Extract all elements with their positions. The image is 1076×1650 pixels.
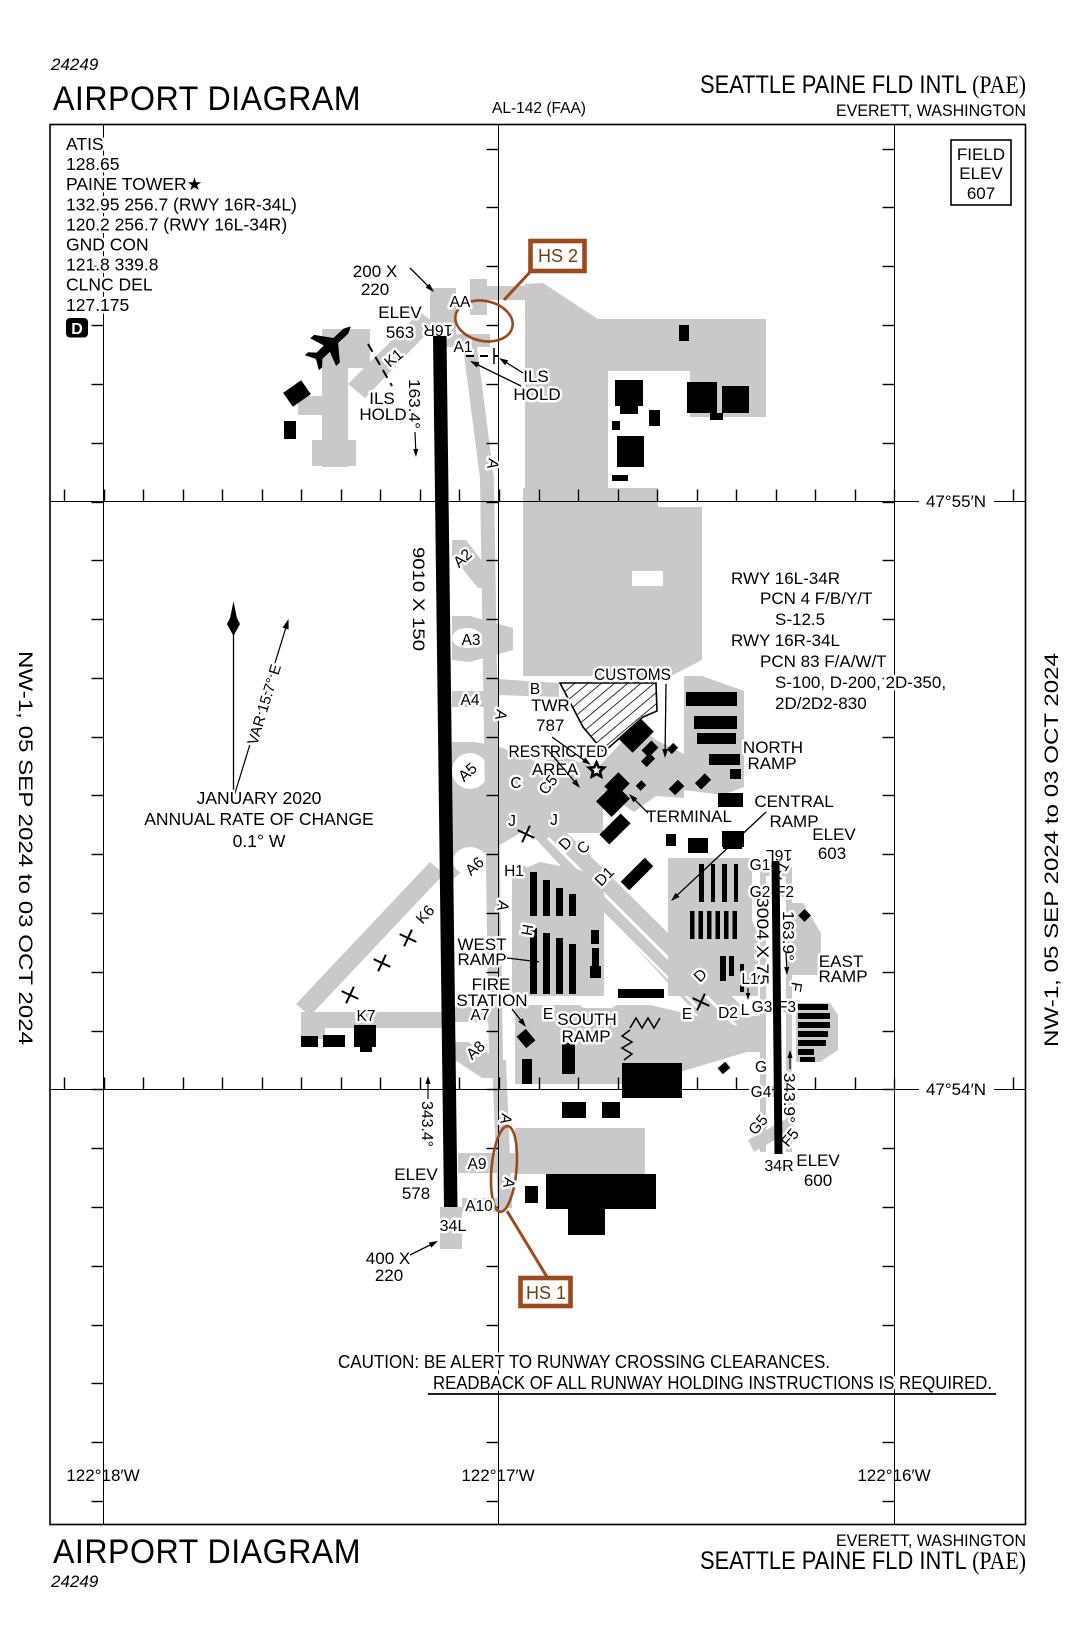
svg-text:G1: G1 xyxy=(750,857,771,874)
svg-text:C: C xyxy=(510,775,521,792)
svg-text:ATIS: ATIS xyxy=(66,134,104,154)
svg-text:24249: 24249 xyxy=(50,1572,99,1591)
svg-text:G2: G2 xyxy=(750,884,771,901)
svg-text:PCN 83 F/A/W/T: PCN 83 F/A/W/T xyxy=(760,652,887,671)
svg-text:603: 603 xyxy=(818,844,846,863)
svg-text:120.2 256.7 (RWY 16L-34R): 120.2 256.7 (RWY 16L-34R) xyxy=(66,214,287,234)
svg-text:J: J xyxy=(508,813,516,830)
svg-text:RAMP: RAMP xyxy=(769,812,818,831)
svg-text:787: 787 xyxy=(536,716,564,735)
svg-text:D2: D2 xyxy=(718,1005,738,1022)
svg-text:563: 563 xyxy=(386,323,414,342)
svg-text:AL-142 (FAA): AL-142 (FAA) xyxy=(492,100,586,117)
svg-text:A1: A1 xyxy=(454,339,473,356)
svg-text:34L: 34L xyxy=(440,1218,467,1235)
svg-text:ELEV: ELEV xyxy=(378,303,422,322)
svg-text:TWR: TWR xyxy=(531,696,570,715)
svg-text:200 X: 200 X xyxy=(353,262,397,281)
svg-text:163.9°: 163.9° xyxy=(779,911,796,961)
svg-text:G: G xyxy=(755,1059,767,1076)
svg-text:TERMINAL: TERMINAL xyxy=(646,807,732,826)
svg-text:B: B xyxy=(530,681,540,698)
svg-text:L: L xyxy=(741,1002,750,1019)
svg-text:L1: L1 xyxy=(741,971,758,988)
svg-text:PCN 4 F/B/Y/T: PCN 4 F/B/Y/T xyxy=(760,589,872,608)
svg-text:RWY 16L-34R: RWY 16L-34R xyxy=(731,569,840,588)
svg-text:ELEV: ELEV xyxy=(394,1165,438,1184)
svg-text:600: 600 xyxy=(804,1171,832,1190)
svg-text:CUSTOMS: CUSTOMS xyxy=(594,665,671,684)
svg-text:NW-1, 05 SEP 2024 to 03 OCT: NW-1, 05 SEP 2024 to 03 OCT 2024 xyxy=(14,651,35,1046)
svg-text:AIRPORT DIAGRAM: AIRPORT DIAGRAM xyxy=(53,1533,361,1571)
svg-text:AIRPORT DIAGRAM: AIRPORT DIAGRAM xyxy=(53,80,361,118)
svg-text:24249: 24249 xyxy=(50,55,99,74)
svg-text:A4: A4 xyxy=(461,692,480,709)
svg-text:127.175: 127.175 xyxy=(66,295,129,315)
svg-text:CLNC DEL: CLNC DEL xyxy=(66,275,153,295)
svg-text:RAMP: RAMP xyxy=(818,967,867,986)
svg-text:HS 2: HS 2 xyxy=(538,246,578,266)
svg-text:ELEV: ELEV xyxy=(796,1151,840,1170)
svg-text:RESTRICTED: RESTRICTED xyxy=(509,742,608,761)
svg-text:RAMP: RAMP xyxy=(561,1027,610,1046)
svg-text:A7: A7 xyxy=(471,1007,490,1024)
svg-text:CENTRAL: CENTRAL xyxy=(754,792,833,811)
svg-text:ELEV: ELEV xyxy=(812,825,856,844)
svg-text:163.4°: 163.4° xyxy=(405,379,422,429)
svg-text:0.1° W: 0.1° W xyxy=(233,831,286,851)
svg-text:SEATTLE PAINE FLD INTL (PAE): SEATTLE PAINE FLD INTL (PAE) xyxy=(700,1547,1026,1575)
svg-text:GND CON: GND CON xyxy=(66,235,149,255)
svg-text:ANNUAL RATE OF CHANGE: ANNUAL RATE OF CHANGE xyxy=(144,809,373,829)
svg-text:9010 X 150: 9010 X 150 xyxy=(409,547,428,651)
svg-text:SEATTLE PAINE FLD INTL (PAE): SEATTLE PAINE FLD INTL (PAE) xyxy=(700,71,1026,99)
svg-text:HS 1: HS 1 xyxy=(526,1283,566,1303)
svg-text:34R: 34R xyxy=(764,1158,793,1175)
svg-text:S-100, D-200, 2D-350,: S-100, D-200, 2D-350, xyxy=(775,673,946,692)
svg-text:47°55′N: 47°55′N xyxy=(926,492,986,511)
svg-text:128.65: 128.65 xyxy=(66,154,120,174)
svg-text:NW-1, 05 SEP 2024 to 03 OCT: NW-1, 05 SEP 2024 to 03 OCT 2024 xyxy=(1042,652,1063,1047)
svg-text:READBACK OF ALL RUNWAY HOLDING: READBACK OF ALL RUNWAY HOLDING INSTRUCTI… xyxy=(433,1373,992,1393)
svg-text:132.95 256.7 (RWY 16R-34L): 132.95 256.7 (RWY 16R-34L) xyxy=(66,194,297,214)
svg-text:A3: A3 xyxy=(462,632,481,649)
svg-text:E: E xyxy=(543,1006,553,1023)
svg-text:STATION: STATION xyxy=(456,991,527,1010)
svg-text:ELEV: ELEV xyxy=(959,164,1003,183)
svg-text:HOLD: HOLD xyxy=(513,385,560,404)
svg-text:CAUTION: BE ALERT TO RUNWAY CR: CAUTION: BE ALERT TO RUNWAY CROSSING CLE… xyxy=(338,1352,830,1372)
svg-text:2D/2D2-830: 2D/2D2-830 xyxy=(775,694,867,713)
svg-text:S-12.5: S-12.5 xyxy=(775,610,825,629)
svg-text:607: 607 xyxy=(967,184,995,203)
svg-text:G3: G3 xyxy=(752,999,773,1016)
svg-text:E: E xyxy=(682,1006,692,1023)
svg-text:D: D xyxy=(71,321,83,338)
svg-text:K7: K7 xyxy=(357,1008,376,1025)
svg-text:FIELD: FIELD xyxy=(957,145,1005,164)
svg-text:AREA: AREA xyxy=(532,760,579,779)
svg-text:A10: A10 xyxy=(465,1198,493,1215)
svg-text:A9: A9 xyxy=(468,1156,487,1173)
svg-text:H1: H1 xyxy=(504,863,524,880)
svg-text:RAMP: RAMP xyxy=(457,950,506,969)
svg-text:578: 578 xyxy=(402,1184,430,1203)
svg-text:JANUARY 2020: JANUARY 2020 xyxy=(197,788,322,808)
svg-text:220: 220 xyxy=(361,280,389,299)
svg-text:EVERETT, WASHINGTON: EVERETT, WASHINGTON xyxy=(836,101,1026,120)
svg-text:J: J xyxy=(550,812,558,829)
svg-text:121.8 339.8: 121.8 339.8 xyxy=(66,255,158,275)
svg-text:220: 220 xyxy=(375,1266,403,1285)
svg-text:47°54′N: 47°54′N xyxy=(926,1080,986,1099)
svg-text:RWY 16R-34L: RWY 16R-34L xyxy=(731,631,840,650)
svg-text:HOLD: HOLD xyxy=(359,405,406,424)
svg-text:RAMP: RAMP xyxy=(747,754,796,773)
svg-text:343.4°: 343.4° xyxy=(418,1101,435,1147)
svg-text:AA: AA xyxy=(450,294,471,311)
svg-text:16R: 16R xyxy=(423,321,452,338)
svg-text:G4: G4 xyxy=(751,1084,772,1101)
svg-text:PAINE TOWER★: PAINE TOWER★ xyxy=(66,174,202,194)
svg-text:343.9°: 343.9° xyxy=(780,1073,797,1123)
svg-text:ILS: ILS xyxy=(523,367,549,386)
